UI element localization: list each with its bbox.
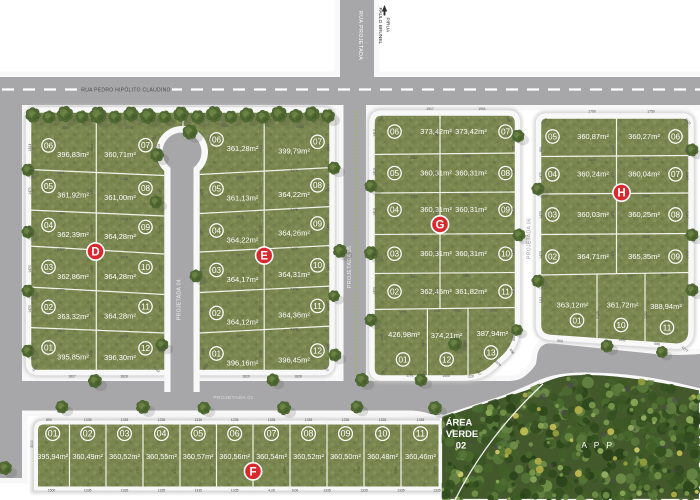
svg-text:360,55m²: 360,55m² [146,452,177,461]
svg-text:396,30m²: 396,30m² [104,353,136,362]
svg-text:3076: 3076 [125,126,133,130]
svg-text:1335: 1335 [158,418,166,422]
svg-text:04: 04 [157,429,167,439]
svg-text:2444: 2444 [588,236,596,240]
svg-text:11: 11 [141,302,150,311]
svg-text:2457: 2457 [62,126,70,130]
svg-text:861: 861 [539,146,543,152]
svg-text:364,17m²: 364,17m² [227,275,259,284]
svg-text:2580: 2580 [410,236,418,240]
svg-text:1335: 1335 [268,418,276,422]
svg-text:1473: 1473 [539,172,543,180]
svg-text:1413: 1413 [512,208,516,216]
svg-text:2478: 2478 [290,208,298,212]
svg-text:1423: 1423 [373,287,377,295]
svg-text:2479: 2479 [290,288,298,292]
svg-text:365,35m²: 365,35m² [628,252,660,261]
svg-text:985: 985 [327,344,331,350]
svg-text:1335: 1335 [323,489,331,493]
svg-text:03: 03 [390,250,400,259]
svg-text:1470: 1470 [90,225,94,233]
svg-text:2129: 2129 [596,311,600,319]
svg-text:2478: 2478 [120,256,128,260]
svg-text:RUA PROJETADA: RUA PROJETADA [357,11,363,60]
svg-text:1500: 1500 [48,489,56,493]
svg-text:1540: 1540 [660,274,668,278]
svg-text:2478: 2478 [120,335,128,339]
svg-text:1720: 1720 [576,276,584,280]
svg-text:RUA PEDRO HIPÓLITO CLAUDINO: RUA PEDRO HIPÓLITO CLAUDINO [81,87,170,94]
svg-text:1413: 1413 [373,168,377,176]
svg-text:360,56m²: 360,56m² [219,452,250,461]
svg-text:1790: 1790 [588,110,596,114]
svg-text:07: 07 [671,170,681,179]
svg-text:395,94m²: 395,94m² [37,452,68,461]
svg-text:387,94m²: 387,94m² [477,329,509,338]
svg-text:640: 640 [512,335,516,341]
svg-text:13: 13 [486,348,496,357]
svg-text:D: D [91,247,99,259]
svg-text:2700: 2700 [394,466,398,474]
svg-text:361,00m²: 361,00m² [104,193,136,202]
svg-text:07: 07 [313,138,323,147]
svg-text:1614: 1614 [259,145,263,153]
svg-text:11: 11 [416,429,425,439]
svg-text:1470: 1470 [200,228,204,236]
svg-text:11: 11 [663,323,672,332]
svg-text:09: 09 [501,206,511,215]
svg-text:1470: 1470 [159,265,163,273]
svg-text:2580: 2580 [410,195,418,199]
svg-text:2470: 2470 [236,215,244,219]
svg-text:1470: 1470 [200,307,204,315]
svg-text:08: 08 [313,181,323,190]
svg-text:2550: 2550 [462,235,470,239]
svg-text:9,06: 9,06 [292,489,299,493]
svg-text:03: 03 [44,263,54,272]
svg-text:360,54m²: 360,54m² [256,452,287,461]
svg-text:1470: 1470 [159,305,163,313]
svg-text:07: 07 [267,429,277,439]
svg-text:05: 05 [548,132,558,141]
svg-text:4,29: 4,29 [268,489,275,493]
svg-text:PAULO BRUNEL: PAULO BRUNEL [377,8,383,45]
svg-text:3081: 3081 [221,124,229,128]
svg-text:04: 04 [212,226,222,235]
svg-text:1335: 1335 [433,489,441,493]
svg-text:360,71m²: 360,71m² [104,150,136,159]
svg-text:2700: 2700 [136,466,140,474]
svg-text:1470: 1470 [327,184,331,192]
svg-text:396,16m²: 396,16m² [227,358,259,367]
svg-text:2700: 2700 [320,466,324,474]
svg-text:1470: 1470 [200,189,204,197]
svg-text:1335: 1335 [342,418,350,422]
svg-text:399,79m²: 399,79m² [278,147,310,156]
svg-text:2445: 2445 [642,195,650,199]
svg-text:2470: 2470 [57,289,65,293]
svg-text:2478: 2478 [290,328,298,332]
svg-text:02: 02 [212,309,222,318]
svg-text:11: 11 [501,287,510,296]
svg-text:388,94m²: 388,94m² [650,302,682,311]
svg-text:364,28m²: 364,28m² [104,311,136,320]
svg-text:2446: 2446 [588,158,596,162]
svg-text:2445: 2445 [588,196,596,200]
svg-text:07: 07 [501,128,511,137]
svg-text:908: 908 [627,274,633,278]
svg-text:1413: 1413 [373,129,377,137]
svg-text:1473: 1473 [686,172,690,180]
svg-text:10: 10 [313,261,323,270]
svg-text:1335: 1335 [194,489,202,493]
svg-text:2580: 2580 [410,275,418,279]
svg-text:01: 01 [398,355,408,364]
svg-text:06: 06 [230,429,240,439]
svg-text:1470: 1470 [159,225,163,233]
svg-text:1470: 1470 [90,305,94,313]
svg-text:362,39m²: 362,39m² [57,230,89,239]
svg-text:364,36m²: 364,36m² [278,311,310,320]
svg-text:08: 08 [671,210,681,219]
svg-text:1470: 1470 [259,305,263,313]
svg-text:1750: 1750 [647,110,655,114]
svg-text:361,82m²: 361,82m² [455,287,487,296]
svg-text:660: 660 [557,339,563,343]
svg-text:PROJETADA 04: PROJETADA 04 [177,279,183,320]
svg-text:1335: 1335 [231,418,239,422]
svg-text:360,49m²: 360,49m² [72,452,103,461]
svg-text:01: 01 [48,429,58,439]
svg-text:1827: 1827 [68,375,76,379]
svg-text:360,50m²: 360,50m² [330,452,361,461]
svg-text:04: 04 [548,170,558,179]
svg-text:1470: 1470 [90,187,94,195]
svg-text:851: 851 [512,145,516,151]
svg-text:10: 10 [378,429,388,439]
svg-text:363,32m²: 363,32m² [57,312,89,321]
svg-text:962: 962 [686,146,690,152]
svg-text:2286: 2286 [120,177,128,181]
svg-text:03: 03 [548,210,558,219]
svg-text:1335: 1335 [360,489,368,493]
svg-text:364,26m²: 364,26m² [278,228,310,237]
svg-text:985: 985 [159,346,163,352]
svg-text:PROJETADA 01: PROJETADA 01 [213,395,253,401]
svg-text:396,45m²: 396,45m² [278,355,310,364]
svg-text:01: 01 [44,343,54,352]
svg-text:09: 09 [341,429,351,439]
svg-text:364,31m²: 364,31m² [278,270,310,279]
svg-text:10: 10 [501,250,511,259]
svg-text:11: 11 [313,302,322,311]
svg-text:2467: 2467 [57,248,65,252]
svg-text:2700: 2700 [434,466,438,474]
svg-text:1335: 1335 [417,418,425,422]
svg-text:1500: 1500 [442,374,450,378]
svg-text:1335: 1335 [158,489,166,493]
svg-text:10: 10 [616,321,626,330]
svg-text:220: 220 [468,375,474,379]
svg-text:364,12m²: 364,12m² [227,318,259,327]
svg-text:1473: 1473 [611,251,615,259]
svg-text:1335: 1335 [84,418,92,422]
svg-text:360,57m²: 360,57m² [183,452,214,461]
svg-text:1413: 1413 [373,248,377,256]
svg-text:360,48m²: 360,48m² [367,452,398,461]
svg-text:2007: 2007 [681,296,685,304]
svg-text:06: 06 [671,132,681,141]
svg-text:1614: 1614 [90,144,94,152]
svg-text:1552: 1552 [618,338,626,343]
svg-text:08: 08 [304,429,314,439]
svg-text:2550: 2550 [462,194,470,198]
svg-text:08: 08 [141,184,151,193]
svg-text:04: 04 [44,221,54,230]
svg-text:1473: 1473 [686,251,690,259]
svg-text:08: 08 [501,169,511,178]
svg-text:09: 09 [671,253,681,262]
svg-text:362,86m²: 362,86m² [57,272,89,281]
svg-text:1536: 1536 [259,350,263,358]
svg-text:1101: 1101 [406,374,413,378]
svg-text:985: 985 [30,345,34,351]
svg-text:364,22m²: 364,22m² [227,235,259,244]
svg-text:09: 09 [313,219,323,228]
svg-text:F: F [249,466,256,478]
svg-text:360,87m²: 360,87m² [577,132,609,141]
svg-text:360,46m²: 360,46m² [405,452,436,461]
svg-text:1418: 1418 [512,287,516,295]
svg-text:1111: 1111 [539,296,543,303]
svg-text:1335: 1335 [84,489,92,493]
svg-text:364,71m²: 364,71m² [577,252,609,261]
svg-text:1470: 1470 [28,187,32,195]
svg-text:361,92m²: 361,92m² [57,191,89,200]
svg-text:1413: 1413 [512,168,516,176]
svg-text:04: 04 [390,206,400,215]
svg-text:1413: 1413 [373,208,377,216]
svg-text:1335: 1335 [231,489,239,493]
svg-text:360,25m²: 360,25m² [628,210,660,219]
svg-text:1750: 1750 [399,311,407,315]
svg-text:1335: 1335 [305,418,313,422]
svg-text:01: 01 [212,349,222,358]
svg-text:12: 12 [442,355,452,364]
svg-text:360,24m²: 360,24m² [577,170,609,179]
svg-text:02: 02 [44,303,54,312]
svg-text:396,83m²: 396,83m² [57,150,89,159]
svg-text:360,52m²: 360,52m² [293,452,324,461]
svg-text:1413: 1413 [435,208,439,216]
svg-text:02: 02 [83,429,93,439]
svg-text:1335: 1335 [379,418,387,422]
svg-text:361,13m²: 361,13m² [227,194,259,203]
svg-text:1917: 1917 [426,107,434,111]
svg-text:1470: 1470 [327,303,331,311]
svg-text:360,31m²: 360,31m² [455,169,487,178]
svg-text:2700: 2700 [173,466,177,474]
svg-text:1470: 1470 [200,267,204,275]
svg-text:E: E [260,251,268,263]
svg-text:H: H [617,188,625,200]
svg-text:2464: 2464 [296,125,304,129]
svg-text:2700: 2700 [210,466,214,474]
svg-text:2476: 2476 [120,296,128,300]
svg-text:05: 05 [212,185,222,194]
svg-text:12: 12 [313,347,323,356]
svg-text:1814: 1814 [28,144,32,152]
svg-text:1335: 1335 [397,489,405,493]
svg-text:2580: 2580 [410,156,418,160]
svg-text:426,98m²: 426,98m² [388,330,420,339]
svg-text:1470: 1470 [259,226,263,234]
svg-text:1473: 1473 [539,251,543,259]
svg-text:2477: 2477 [236,335,244,339]
svg-text:2700: 2700 [283,466,287,474]
svg-text:2477: 2477 [236,254,244,258]
svg-text:2477: 2477 [236,294,244,298]
svg-text:P/RUA: P/RUA [384,18,390,33]
svg-text:1641: 1641 [380,333,384,341]
svg-text:3000: 3000 [30,440,34,448]
svg-text:06: 06 [44,141,54,150]
svg-text:1434: 1434 [327,144,331,152]
svg-text:890: 890 [46,418,52,422]
svg-text:364,28m²: 364,28m² [104,232,136,241]
svg-text:360,27m²: 360,27m² [628,132,660,141]
svg-text:02: 02 [548,253,558,262]
svg-text:360,52m²: 360,52m² [109,452,140,461]
svg-text:364,22m²: 364,22m² [278,190,310,199]
svg-text:361,72m²: 361,72m² [607,301,639,310]
svg-text:364,28m²: 364,28m² [104,272,136,281]
svg-text:1470: 1470 [28,265,32,273]
svg-text:1473: 1473 [611,172,615,180]
svg-text:1470: 1470 [28,305,32,313]
svg-text:1413: 1413 [512,248,516,256]
svg-text:1335: 1335 [121,418,129,422]
svg-text:1420: 1420 [435,287,439,295]
svg-text:1473: 1473 [611,211,615,219]
svg-text:A P P: A P P [581,440,614,450]
svg-text:2403: 2403 [421,339,425,347]
svg-text:1473: 1473 [686,211,690,219]
svg-text:2550: 2550 [462,274,470,278]
svg-text:395,85m²: 395,85m² [57,352,89,361]
svg-text:12: 12 [141,344,151,353]
svg-text:1838: 1838 [89,350,93,358]
svg-text:1413: 1413 [435,129,439,137]
svg-text:722: 722 [603,275,609,279]
svg-text:03: 03 [212,266,222,275]
svg-text:690: 690 [434,309,440,313]
svg-text:1828: 1828 [294,375,302,379]
svg-text:2467: 2467 [463,339,467,347]
svg-text:1470: 1470 [327,223,331,231]
svg-text:2700: 2700 [357,466,361,474]
svg-text:01: 01 [572,316,582,325]
svg-text:1470: 1470 [259,187,263,195]
svg-text:1335: 1335 [194,418,202,422]
svg-text:2478: 2478 [120,218,128,222]
svg-text:2473: 2473 [57,329,65,333]
svg-text:2461: 2461 [57,171,65,175]
svg-text:360,03m²: 360,03m² [577,210,609,219]
svg-text:2700: 2700 [99,466,103,474]
svg-text:680: 680 [654,342,660,346]
svg-text:360,31m²: 360,31m² [455,205,487,214]
svg-text:VERDE: VERDE [446,428,478,439]
svg-text:2446: 2446 [642,235,650,239]
svg-text:1634: 1634 [157,144,161,152]
svg-text:1470: 1470 [28,225,32,233]
svg-text:2292: 2292 [236,176,244,180]
svg-text:03: 03 [120,429,130,439]
svg-text:2479: 2479 [290,247,298,251]
svg-text:2464: 2464 [57,212,65,216]
svg-text:1473: 1473 [539,211,543,219]
svg-text:1828: 1828 [120,375,128,379]
svg-text:1470: 1470 [159,187,163,195]
svg-text:1413: 1413 [435,248,439,256]
svg-text:361,28m²: 361,28m² [227,144,259,153]
svg-text:G: G [436,220,445,232]
svg-text:ÁREA: ÁREA [446,417,473,428]
svg-text:1470: 1470 [327,263,331,271]
svg-text:700: 700 [455,309,461,313]
svg-text:1829: 1829 [242,375,250,379]
svg-text:02: 02 [390,287,400,296]
svg-text:06: 06 [390,128,400,137]
svg-text:05: 05 [390,169,400,178]
svg-text:1025: 1025 [201,348,205,356]
svg-text:05: 05 [193,429,203,439]
svg-text:2478: 2478 [290,169,298,173]
svg-text:1850: 1850 [489,309,497,313]
svg-text:374,21m²: 374,21m² [431,331,463,340]
svg-text:2550: 2550 [462,155,470,159]
svg-text:2352: 2352 [644,311,648,319]
svg-text:2700: 2700 [63,466,67,474]
svg-text:2444: 2444 [642,157,650,161]
svg-text:1470: 1470 [259,265,263,273]
svg-text:07: 07 [141,141,151,150]
svg-text:373,42m²: 373,42m² [455,127,487,136]
svg-text:1470: 1470 [90,265,94,273]
svg-text:05: 05 [44,182,54,191]
svg-text:360,04m²: 360,04m² [628,170,660,179]
svg-text:1901: 1901 [478,107,486,111]
svg-text:360,31m²: 360,31m² [455,249,487,258]
svg-text:363,12m²: 363,12m² [557,301,589,310]
svg-text:1412: 1412 [611,145,615,153]
svg-text:1335: 1335 [121,489,129,493]
svg-text:09: 09 [141,223,151,232]
svg-text:1413: 1413 [435,168,439,176]
svg-text:10: 10 [141,263,151,272]
svg-text:02: 02 [456,440,466,451]
